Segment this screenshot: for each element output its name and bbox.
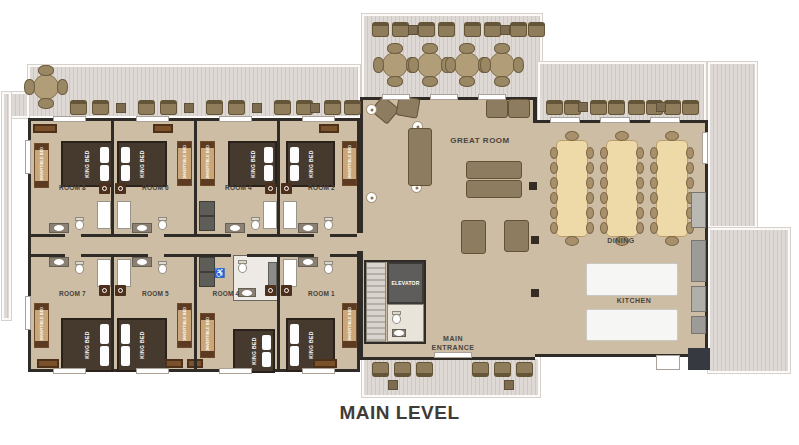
dining-chair bbox=[650, 222, 658, 234]
patio-chair bbox=[422, 76, 438, 87]
elevator: ELEVATOR bbox=[387, 262, 424, 304]
patio-chair bbox=[494, 76, 510, 87]
party-wall bbox=[111, 257, 114, 369]
patio-chair bbox=[387, 43, 403, 54]
shower bbox=[97, 259, 111, 287]
patio-table bbox=[33, 74, 59, 100]
convertible-bed: CONVERTIBLE BED bbox=[342, 141, 357, 186]
window bbox=[702, 132, 708, 164]
convertible-bed: CONVERTIBLE BED bbox=[342, 303, 357, 348]
deck-armchair bbox=[70, 100, 87, 115]
dining-chair bbox=[550, 147, 558, 159]
dresser bbox=[33, 124, 57, 133]
loveseat bbox=[466, 161, 522, 179]
deck-armchair bbox=[590, 100, 607, 115]
toilet bbox=[251, 217, 260, 230]
room-label: ROOM 5 bbox=[114, 290, 197, 297]
step-wall bbox=[533, 97, 537, 123]
toilet bbox=[75, 261, 84, 274]
king-bed-label: KING BED bbox=[308, 331, 314, 359]
dining-chair bbox=[665, 236, 679, 246]
deck-armchair bbox=[416, 362, 433, 377]
convertible-bed: CONVERTIBLE BED bbox=[200, 313, 215, 358]
patio-chair bbox=[513, 57, 524, 73]
dining-chair bbox=[586, 207, 594, 219]
patio-table bbox=[382, 52, 408, 78]
deck-armchair bbox=[344, 100, 361, 115]
king-bed-label: KING BED bbox=[139, 331, 145, 359]
toilet bbox=[158, 217, 167, 230]
elevator-block: ELEVATOR bbox=[364, 260, 426, 344]
deck-side-table bbox=[408, 25, 418, 35]
dresser bbox=[313, 359, 337, 368]
dining-chair bbox=[550, 177, 558, 189]
post bbox=[531, 289, 539, 297]
deck-armchair bbox=[92, 100, 109, 115]
deck-armchair bbox=[484, 22, 501, 37]
king-bed-label: KING BED bbox=[308, 150, 314, 178]
shower bbox=[97, 201, 111, 229]
door-marker bbox=[115, 183, 126, 194]
dining-chair bbox=[665, 131, 679, 141]
window bbox=[136, 116, 169, 122]
dining-chair bbox=[636, 177, 644, 189]
patio-chair bbox=[422, 43, 438, 54]
post bbox=[531, 236, 539, 244]
hallway-wall bbox=[330, 254, 357, 257]
patio-chair bbox=[38, 65, 54, 76]
window bbox=[53, 116, 86, 122]
dining-chair bbox=[636, 207, 644, 219]
party-wall bbox=[194, 257, 197, 369]
deck-side-table bbox=[578, 102, 588, 112]
hallway-wall bbox=[164, 234, 231, 237]
patio-chair bbox=[57, 79, 68, 95]
convertible-bed-label: CONVERTIBLE BED bbox=[35, 304, 48, 347]
deck-side-table bbox=[500, 25, 510, 35]
bathroom-vanity bbox=[49, 257, 69, 267]
king-bed-label: KING BED bbox=[250, 150, 256, 178]
powder-room bbox=[387, 304, 424, 342]
deck-armchair bbox=[628, 100, 645, 115]
toilet bbox=[324, 261, 333, 274]
window bbox=[25, 296, 31, 330]
convertible-bed: CONVERTIBLE BED bbox=[34, 143, 49, 188]
dining-chair bbox=[550, 222, 558, 234]
dresser bbox=[319, 124, 339, 133]
post bbox=[529, 182, 537, 190]
deck-armchair bbox=[516, 362, 533, 377]
dining-chair bbox=[600, 147, 608, 159]
king-bed-label: KING BED bbox=[251, 337, 257, 365]
deck-armchair bbox=[494, 362, 511, 377]
door-marker bbox=[265, 285, 276, 296]
shower bbox=[263, 201, 277, 229]
patio-chair bbox=[459, 76, 475, 87]
dining-table bbox=[606, 140, 638, 237]
patio-chair bbox=[445, 57, 456, 73]
window bbox=[650, 117, 680, 123]
deck-right-upper bbox=[708, 62, 757, 228]
hallway-wall bbox=[81, 234, 148, 237]
toilet bbox=[158, 261, 167, 274]
patio-chair bbox=[387, 76, 403, 87]
dining-chair bbox=[686, 177, 694, 189]
dining-chair bbox=[550, 192, 558, 204]
dining-chair bbox=[650, 207, 658, 219]
party-wall bbox=[194, 121, 197, 234]
dresser bbox=[37, 359, 59, 368]
convertible-bed-label: CONVERTIBLE BED bbox=[178, 142, 191, 185]
patio-chair bbox=[408, 57, 419, 73]
dining-chair bbox=[650, 177, 658, 189]
deck-armchair bbox=[372, 22, 389, 37]
deck-armchair bbox=[464, 22, 481, 37]
party-wall bbox=[277, 257, 280, 369]
door-marker bbox=[99, 285, 110, 296]
king-bed: KING BED bbox=[117, 141, 167, 187]
deck-side-table bbox=[504, 380, 514, 390]
king-bed: KING BED bbox=[233, 329, 275, 373]
patio-chair bbox=[24, 79, 35, 95]
deck-armchair bbox=[510, 22, 527, 37]
dining-chair bbox=[586, 147, 594, 159]
hallway-wall bbox=[81, 254, 148, 257]
main-entrance-label: MAIN ENTRANCE bbox=[430, 334, 476, 352]
dining-table bbox=[656, 140, 688, 237]
dining-chair bbox=[600, 207, 608, 219]
stairs bbox=[366, 262, 386, 342]
convertible-bed-label: CONVERTIBLE BED bbox=[343, 142, 356, 185]
hallway-wall bbox=[164, 254, 231, 257]
door-marker bbox=[281, 285, 292, 296]
party-wall bbox=[277, 121, 280, 234]
dining-chair bbox=[586, 177, 594, 189]
side-table bbox=[366, 104, 377, 115]
kitchen-island bbox=[586, 263, 678, 296]
hallway-wall bbox=[31, 234, 65, 237]
range bbox=[691, 286, 706, 312]
window bbox=[302, 368, 335, 374]
convertible-bed-label: CONVERTIBLE BED bbox=[201, 142, 214, 185]
hallway-wall bbox=[330, 234, 357, 237]
dining-chair bbox=[650, 162, 658, 174]
refrigerator bbox=[691, 192, 706, 228]
deck-armchair bbox=[324, 100, 341, 115]
deck-armchair bbox=[138, 100, 155, 115]
bathroom-vanity bbox=[132, 257, 152, 267]
deck-armchair bbox=[546, 100, 563, 115]
deck-armchair bbox=[372, 362, 389, 377]
dining-chair bbox=[600, 222, 608, 234]
dining-chair bbox=[550, 207, 558, 219]
bathroom-vanity bbox=[132, 223, 152, 233]
deck-armchair bbox=[418, 22, 435, 37]
dining-chair bbox=[600, 162, 608, 174]
dining-chair bbox=[615, 131, 629, 141]
deck-armchair bbox=[394, 362, 411, 377]
great-room-label: GREAT ROOM bbox=[430, 136, 530, 145]
kitchen-island bbox=[586, 309, 678, 341]
dining-chair bbox=[636, 222, 644, 234]
bathroom-vanity bbox=[298, 223, 318, 233]
convertible-bed-label: CONVERTIBLE BED bbox=[178, 304, 191, 347]
convertible-bed-label: CONVERTIBLE BED bbox=[201, 314, 214, 357]
kitchen-label: KITCHEN bbox=[604, 297, 664, 304]
corner-wall bbox=[688, 348, 710, 370]
deck-armchair bbox=[438, 22, 455, 37]
patio-table bbox=[454, 52, 480, 78]
deck-side-table bbox=[656, 102, 666, 112]
window bbox=[550, 117, 580, 123]
dining-chair bbox=[686, 162, 694, 174]
dining-chair bbox=[565, 236, 579, 246]
window bbox=[219, 368, 252, 374]
hallway-opening bbox=[357, 233, 369, 251]
king-bed: KING BED bbox=[286, 141, 335, 187]
bathroom-vanity bbox=[225, 223, 245, 233]
window bbox=[382, 94, 410, 100]
deck-armchair bbox=[664, 100, 681, 115]
dining-chair bbox=[650, 192, 658, 204]
king-bed-label: KING BED bbox=[139, 150, 145, 178]
party-wall bbox=[111, 121, 114, 234]
dining-chair bbox=[636, 147, 644, 159]
wheelchair-accessible-icon: ♿ bbox=[214, 268, 225, 278]
elevator-label: ELEVATOR bbox=[392, 280, 420, 286]
window bbox=[136, 368, 169, 374]
window bbox=[219, 116, 252, 122]
patio-chair bbox=[494, 43, 510, 54]
dining-chair bbox=[650, 147, 658, 159]
deck-armchair bbox=[228, 100, 245, 115]
deck-left-strip bbox=[2, 92, 11, 320]
shower bbox=[283, 201, 297, 229]
guest-room-wing: KING BED CONVERTIBLE BED ROOM 8 KING BED… bbox=[28, 118, 360, 372]
patio-chair bbox=[38, 98, 54, 109]
lounge-chair bbox=[504, 220, 529, 252]
king-bed-label: KING BED bbox=[84, 331, 90, 359]
armchair bbox=[486, 99, 508, 118]
bathroom-vanity bbox=[49, 223, 69, 233]
dining-chair bbox=[586, 162, 594, 174]
dining-chair bbox=[636, 162, 644, 174]
convertible-bed: CONVERTIBLE BED bbox=[177, 303, 192, 348]
door-marker bbox=[265, 183, 276, 194]
deck-armchair bbox=[608, 100, 625, 115]
king-bed-label: KING BED bbox=[84, 150, 90, 178]
king-bed: KING BED bbox=[61, 141, 113, 187]
deck-side-table bbox=[252, 103, 262, 113]
toilet bbox=[75, 217, 84, 230]
dresser bbox=[153, 124, 173, 133]
convertible-bed: CONVERTIBLE BED bbox=[200, 141, 215, 186]
deck-side-table bbox=[388, 380, 398, 390]
patio-table bbox=[489, 52, 515, 78]
patio-chair bbox=[459, 43, 475, 54]
side-table bbox=[366, 192, 377, 203]
dining-chair bbox=[636, 192, 644, 204]
window bbox=[430, 94, 458, 100]
loveseat bbox=[466, 180, 522, 198]
dining-chair bbox=[686, 147, 694, 159]
door-marker bbox=[99, 183, 110, 194]
dining-label: DINING bbox=[591, 237, 651, 244]
dining-chair bbox=[586, 222, 594, 234]
hallway-wall bbox=[247, 254, 314, 257]
kitchen-counter bbox=[691, 316, 706, 334]
shower bbox=[117, 259, 131, 287]
patio-chair bbox=[373, 57, 384, 73]
door-marker bbox=[281, 183, 292, 194]
dining-chair bbox=[586, 192, 594, 204]
dining-chair bbox=[565, 131, 579, 141]
dresser bbox=[165, 359, 183, 368]
window bbox=[53, 368, 86, 374]
sofa bbox=[408, 128, 432, 186]
patio-table bbox=[417, 52, 443, 78]
king-bed: KING BED bbox=[117, 318, 167, 372]
deck-armchair bbox=[274, 100, 291, 115]
bathroom-vanity bbox=[298, 257, 318, 267]
deck-armchair bbox=[392, 22, 409, 37]
deck-right-lower bbox=[708, 228, 790, 373]
hallway-wall bbox=[247, 234, 314, 237]
deck-armchair bbox=[160, 100, 177, 115]
shower bbox=[117, 201, 131, 229]
hallway-wall bbox=[31, 254, 65, 257]
king-bed: KING BED bbox=[228, 141, 277, 187]
patio-chair bbox=[480, 57, 491, 73]
deck-side-table bbox=[184, 103, 194, 113]
room-label: ROOM 6 bbox=[114, 184, 197, 191]
dining-chair bbox=[550, 162, 558, 174]
floor-plan: KING BED CONVERTIBLE BED ROOM 8 KING BED… bbox=[0, 0, 799, 445]
room-label: ROOM 1 bbox=[280, 290, 363, 297]
dining-chair bbox=[600, 177, 608, 189]
shower bbox=[283, 259, 297, 287]
window bbox=[600, 117, 630, 123]
dining-chair bbox=[600, 192, 608, 204]
window bbox=[302, 116, 335, 122]
window bbox=[478, 94, 506, 100]
deck-armchair bbox=[682, 100, 699, 115]
deck-armchair bbox=[528, 22, 545, 37]
deck-side-table bbox=[116, 103, 126, 113]
kitchen-door bbox=[656, 355, 680, 370]
room-label: ROOM 2 bbox=[280, 184, 363, 191]
lounge-chair bbox=[461, 220, 486, 254]
window bbox=[434, 352, 472, 358]
convertible-bed-label: CONVERTIBLE BED bbox=[343, 304, 356, 347]
toilet bbox=[324, 217, 333, 230]
deck-side-table bbox=[310, 103, 320, 113]
deck-armchair bbox=[206, 100, 223, 115]
convertible-bed-label: CONVERTIBLE BED bbox=[35, 144, 48, 187]
convertible-bed: CONVERTIBLE BED bbox=[177, 141, 192, 186]
dining-table bbox=[556, 140, 588, 237]
plan-title: MAIN LEVEL bbox=[0, 402, 799, 424]
armchair bbox=[508, 99, 530, 118]
window bbox=[25, 140, 31, 174]
room-label: ROOM 4 bbox=[191, 290, 261, 297]
deck-armchair bbox=[472, 362, 489, 377]
convertible-bed: CONVERTIBLE BED bbox=[34, 303, 49, 348]
door-marker bbox=[115, 285, 126, 296]
king-bed: KING BED bbox=[61, 318, 113, 372]
linen-closet bbox=[199, 201, 215, 231]
linen-closet bbox=[199, 257, 215, 287]
kitchen-counter bbox=[691, 240, 706, 282]
